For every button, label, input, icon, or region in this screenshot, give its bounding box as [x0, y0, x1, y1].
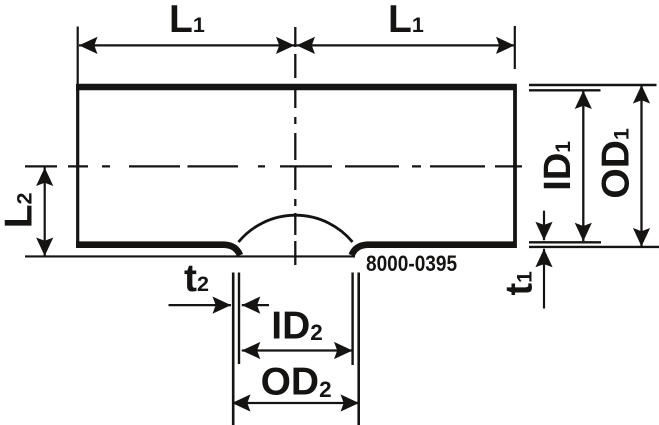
svg-text:L2: L2: [0, 192, 40, 228]
svg-text:ID2: ID2: [271, 305, 323, 348]
svg-text:t2: t2: [184, 257, 209, 300]
svg-text:ID1: ID1: [537, 141, 579, 191]
svg-text:OD1: OD1: [595, 128, 638, 199]
svg-text:t1: t1: [499, 271, 541, 296]
svg-text:8000-0395: 8000-0395: [366, 252, 457, 277]
svg-text:OD2: OD2: [261, 361, 332, 404]
svg-text:L1: L1: [388, 0, 424, 41]
svg-text:L1: L1: [169, 0, 205, 41]
